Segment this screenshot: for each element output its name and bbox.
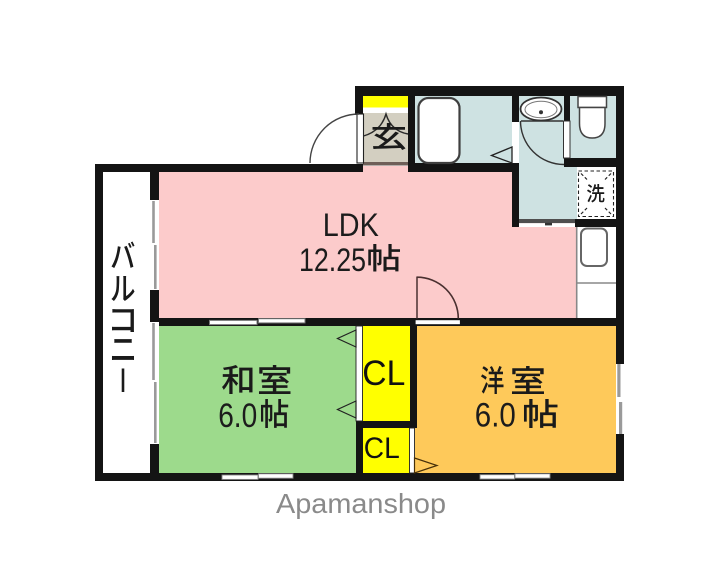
svg-text:CL: CL xyxy=(362,354,405,393)
svg-text:LDK: LDK xyxy=(323,207,379,243)
svg-text:CL: CL xyxy=(364,432,400,465)
svg-text:12.25: 12.25 xyxy=(299,242,366,278)
svg-text:6.0: 6.0 xyxy=(218,397,257,435)
svg-text:Apamanshop: Apamanshop xyxy=(276,488,446,519)
svg-text:6.0: 6.0 xyxy=(475,397,516,435)
